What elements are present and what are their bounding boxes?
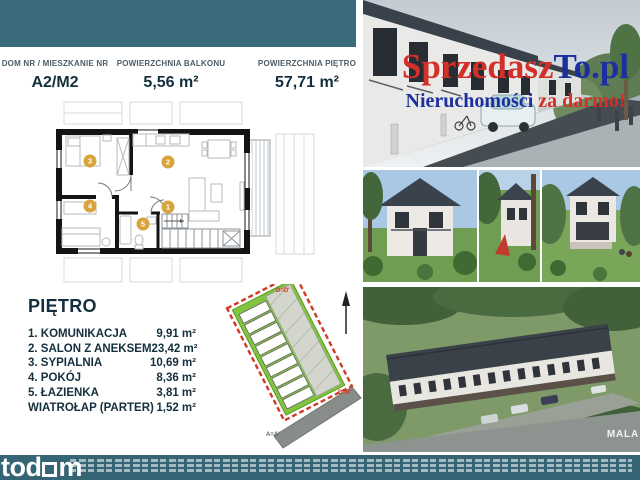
room-row: 2. SALON Z ANEKSEM 23,42 m² — [28, 342, 196, 357]
rooms-list: PIĘTRO 1. KOMUNIKACJA 9,91 m² 2. SALON Z… — [28, 296, 196, 415]
photo-garden-rear — [542, 170, 640, 282]
room-name: 5. ŁAZIENKA — [28, 386, 99, 401]
room-name: 4. POKÓJ — [28, 371, 81, 386]
room-number: 1 — [166, 203, 170, 212]
room-row: 1. KOMUNIKACJA 9,91 m² — [28, 327, 196, 342]
room-name: WIATROŁAP (PARTER) — [28, 401, 154, 416]
room-area: 3,81 m² — [156, 386, 196, 401]
room-row: WIATROŁAP (PARTER) 1,52 m² — [28, 401, 196, 416]
section-label-bottom: A=A' — [266, 432, 280, 438]
section-label-right: B=B' — [338, 390, 352, 396]
room-area: 9,91 m² — [156, 327, 196, 342]
balcony — [249, 140, 270, 236]
room-area: 10,69 m² — [150, 356, 196, 371]
watermark-brand-blue: To.pl — [554, 47, 630, 86]
watermark-brand: SprzedaszTo.pl — [391, 48, 640, 86]
fineprint-line — [70, 464, 632, 467]
fineprint-line — [70, 459, 632, 462]
fineprint-line — [70, 469, 632, 472]
room-area: 1,52 m² — [156, 401, 196, 416]
watermark-slogan: Nieruchomości za darmo! — [391, 90, 640, 113]
photo-street-view: SprzedaszTo.pl Nieruchomości za darmo! — [363, 0, 640, 167]
room-number: 5 — [141, 220, 145, 229]
floor-heading: PIĘTRO — [28, 296, 196, 317]
top-banner — [0, 0, 356, 47]
room-area: 8,36 m² — [156, 371, 196, 386]
watermark-brand-red: Sprzedasz — [402, 47, 554, 86]
room-row: 3. SYPIALNIA 10,69 m² — [28, 356, 196, 371]
room-name: 2. SALON Z ANEKSEM — [28, 342, 152, 357]
site-plan: D=D' B=B' A=A' — [224, 284, 364, 458]
development-name-label: MALA — [607, 429, 639, 440]
room-row: 4. POKÓJ 8,36 m² — [28, 371, 196, 386]
footer-bar: todm — [0, 455, 640, 480]
photo-aerial-view: MALA — [363, 287, 640, 452]
room-number: 3 — [88, 157, 92, 166]
square-o-icon — [42, 462, 57, 477]
room-name: 3. SYPIALNIA — [28, 356, 102, 371]
room-row: 5. ŁAZIENKA 3,81 m² — [28, 386, 196, 401]
floor-plan: 3 2 1 4 5 — [18, 98, 343, 293]
room-name: 1. KOMUNIKACJA — [28, 327, 127, 342]
logo-text-left: tod — [1, 452, 41, 480]
listing-image: DOM NR / MIESZKANIE NR A2/M2 POWIERZCHNI… — [0, 0, 640, 480]
photo-garden-side — [479, 170, 540, 282]
photo-garden-front — [363, 170, 477, 282]
watermark-slogan-red: za darmo! — [533, 90, 625, 112]
watermark-slogan-blue: Nieruchomości — [406, 90, 534, 112]
legal-fineprint — [70, 459, 632, 474]
room-number: 2 — [166, 158, 170, 167]
north-arrow-icon — [342, 291, 350, 334]
room-area: 23,42 m² — [152, 342, 198, 357]
section-label-top: D=D' — [276, 288, 290, 294]
